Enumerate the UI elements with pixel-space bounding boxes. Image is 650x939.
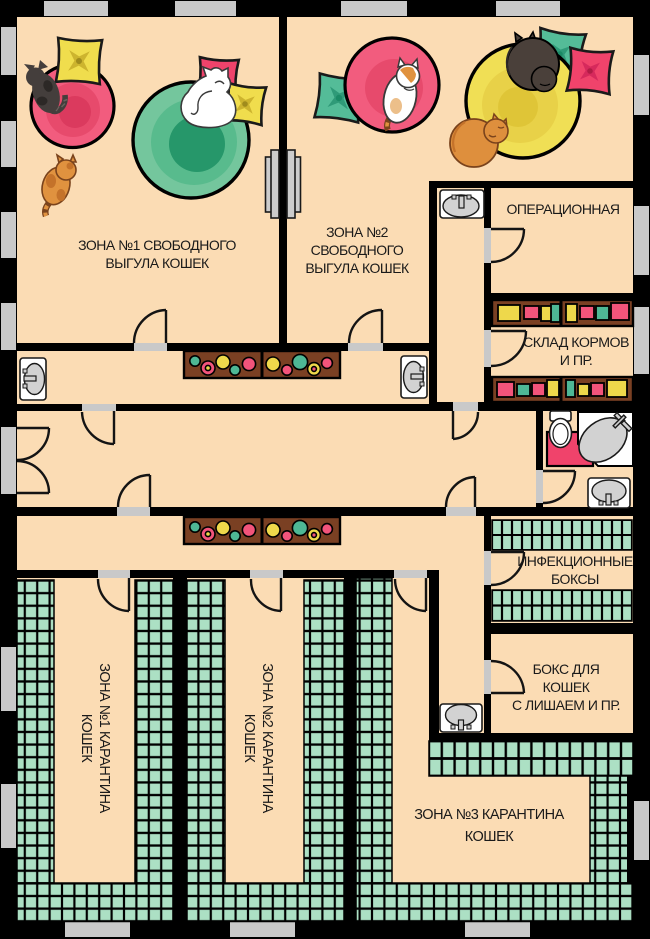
svg-text:ВЫГУЛА КОШЕК: ВЫГУЛА КОШЕК xyxy=(305,260,410,276)
svg-text:С ЛИШАЕМ И ПР.: С ЛИШАЕМ И ПР. xyxy=(512,697,620,713)
svg-text:ВЫГУЛА КОШЕК: ВЫГУЛА КОШЕК xyxy=(105,255,210,271)
svg-text:КОШЕК: КОШЕК xyxy=(543,679,591,695)
svg-text:КОШЕК: КОШЕК xyxy=(78,714,94,764)
svg-text:ЗОНА №2: ЗОНА №2 xyxy=(326,224,389,240)
svg-text:СКЛАД КОРМОВ: СКЛАД КОРМОВ xyxy=(523,335,629,351)
svg-text:ЗОНА №1 СВОБОДНОГО: ЗОНА №1 СВОБОДНОГО xyxy=(78,237,236,253)
svg-text:ОПЕРАЦИОННАЯ: ОПЕРАЦИОННАЯ xyxy=(506,201,619,217)
svg-text:ЗОНА №3 КАРАНТИНА: ЗОНА №3 КАРАНТИНА xyxy=(414,807,564,823)
svg-text:БОКСЫ: БОКСЫ xyxy=(551,571,599,587)
svg-text:БОКС ДЛЯ: БОКС ДЛЯ xyxy=(533,661,600,677)
svg-text:СВОБОДНОГО: СВОБОДНОГО xyxy=(311,242,404,258)
svg-text:И ПР.: И ПР. xyxy=(560,353,593,369)
svg-text:ЗОНА №2 КАРАНТИНА: ЗОНА №2 КАРАНТИНА xyxy=(259,663,275,813)
svg-text:ЗОНА №1 КАРАНТИНА: ЗОНА №1 КАРАНТИНА xyxy=(96,663,112,813)
svg-text:ИНФЕКЦИОННЫЕ: ИНФЕКЦИОННЫЕ xyxy=(517,553,633,569)
svg-text:КОШЕК: КОШЕК xyxy=(241,714,257,764)
svg-text:КОШЕК: КОШЕК xyxy=(465,829,515,845)
